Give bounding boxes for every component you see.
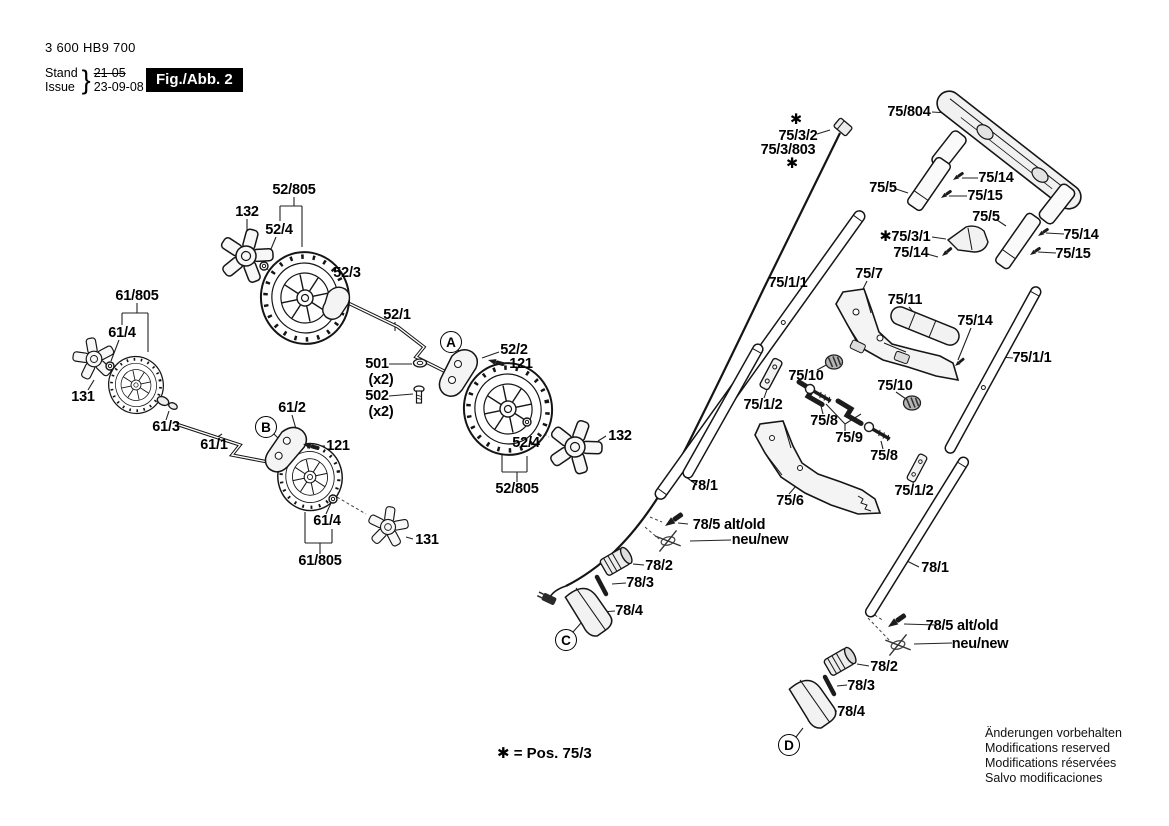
spring-75-10-left (826, 355, 843, 369)
bushing-52-4-right (523, 418, 531, 426)
part-label-52-1: 52/1 (383, 307, 410, 323)
part-label-x2: (x2) (369, 404, 394, 420)
crossed-screw-right (885, 634, 910, 655)
part-label-neu-new: neu/new (952, 636, 1009, 652)
part-label-78-5-alt-old: 78/5 alt/old (693, 517, 766, 533)
screw-502 (414, 386, 424, 403)
bushing-61-4-bottom (329, 495, 337, 503)
stand-value: 21-05 (94, 66, 144, 80)
parts-diagram-page: 3 600 HB9 700 Stand Issue } 21-05 23-09-… (0, 0, 1169, 826)
crossed-screw-left (655, 530, 680, 551)
wheel-61-805-left (103, 351, 168, 418)
issue-label: Issue (45, 80, 78, 94)
part-label-52-805: 52/805 (495, 481, 538, 497)
part-label-75-15: 75/15 (967, 188, 1002, 204)
part-label-75-1-2: 75/1/2 (894, 483, 933, 499)
part-label-52-4: 52/4 (512, 435, 539, 451)
part-label-75-14: 75/14 (1063, 227, 1098, 243)
part-label-75-804: 75/804 (887, 104, 930, 120)
tube-75-5-right (994, 212, 1042, 270)
part-label-75-14: 75/14 (978, 170, 1013, 186)
callout-B: B (255, 416, 277, 438)
part-label-132: 132 (235, 204, 259, 220)
pin-78-3-d (825, 677, 834, 694)
callout-C: C (555, 629, 577, 651)
part-label-78-1: 78/1 (690, 478, 717, 494)
part-label-502: 502 (365, 388, 389, 404)
figure-number-badge: Fig./Abb. 2 (146, 68, 243, 92)
disclaimer: Änderungen vorbehaltenModifications rese… (985, 726, 1122, 786)
disclaimer-line: Salvo modificaciones (985, 771, 1122, 786)
tube-75-5-left (906, 156, 952, 212)
screw-75-14-right (1037, 227, 1050, 238)
bushing-61-4-left (106, 362, 114, 370)
callout-A: A (440, 331, 462, 353)
screw-75-14-top-left (952, 171, 965, 182)
part-label-75-1-2: 75/1/2 (743, 397, 782, 413)
part-number: 3 600 HB9 700 (45, 40, 144, 55)
washer-501 (414, 359, 427, 367)
pin-78-3-c (597, 577, 606, 594)
disclaimer-line: Änderungen vorbehalten (985, 726, 1122, 741)
part-label-75-9: 75/9 (835, 430, 862, 446)
part-label-75-5: 75/5 (869, 180, 896, 196)
cover-78-4-d (787, 673, 840, 731)
part-label-asterisk: ✱ (790, 112, 802, 128)
part-label-75-11: 75/11 (888, 292, 923, 308)
part-label-61-4: 61/4 (108, 325, 135, 341)
lever-75-9-b (835, 401, 863, 423)
part-label-75-3-1: ✱75/3/1 (879, 229, 930, 245)
part-label-78-2: 78/2 (645, 558, 672, 574)
part-label-78-3: 78/3 (626, 575, 653, 591)
screw-78-5-left (663, 511, 685, 529)
part-label-61-805: 61/805 (115, 288, 158, 304)
part-label-75-10: 75/10 (877, 378, 912, 394)
part-label-501: 501 (365, 356, 389, 372)
screw-78-5-right (886, 612, 908, 630)
plate-75-1-2-left (759, 358, 783, 391)
part-label-121: 121 (326, 438, 350, 454)
disclaimer-line: Modifications reserved (985, 741, 1122, 756)
stand-label: Stand (45, 66, 78, 80)
part-label-61-2: 61/2 (278, 400, 305, 416)
part-label-75-1-1: 75/1/1 (1012, 350, 1051, 366)
part-label-78-1: 78/1 (921, 560, 948, 576)
part-label-52-3: 52/3 (333, 265, 360, 281)
screw-75-14-mid (941, 246, 954, 258)
cap-75-3-1 (948, 226, 988, 252)
exploded-parts-drawing (0, 0, 1169, 826)
part-label-78-4: 78/4 (837, 704, 864, 720)
part-label-131: 131 (71, 389, 95, 405)
part-label-61-1: 61/1 (200, 437, 227, 453)
part-label-75-7: 75/7 (855, 266, 882, 282)
part-label-78-4: 78/4 (615, 603, 642, 619)
part-label-75-10: 75/10 (788, 368, 823, 384)
bar-75-11 (888, 304, 962, 348)
part-label-131: 131 (415, 532, 439, 548)
title-block: 3 600 HB9 700 Stand Issue } 21-05 23-09-… (45, 40, 144, 94)
knob-78-2-c (599, 546, 634, 577)
part-label-78-2: 78/2 (870, 659, 897, 675)
screw-75-15-right (1029, 246, 1042, 257)
screw-75-14-deck (954, 357, 966, 368)
upper-handle-75-804 (930, 86, 1086, 225)
part-label-75-14: 75/14 (893, 245, 928, 261)
stand-issue-block: Stand Issue } 21-05 23-09-08 (45, 66, 144, 94)
hubcap-131-bottom (365, 504, 411, 549)
plate-75-1-2-right (906, 453, 927, 483)
issue-value: 23-09-08 (94, 80, 144, 94)
part-label-61-4: 61/4 (313, 513, 340, 529)
part-label-78-3: 78/3 (847, 678, 874, 694)
bushing-61-3 (156, 395, 178, 411)
tube-78-1-right (864, 455, 971, 618)
part-label-132: 132 (608, 428, 632, 444)
part-label-75-1-1: 75/1/1 (768, 275, 807, 291)
part-label-asterisk: ✱ (786, 156, 798, 172)
part-label-75-6: 75/6 (776, 493, 803, 509)
part-label-75-15: 75/15 (1055, 246, 1090, 262)
part-label-75-8: 75/8 (810, 413, 837, 429)
part-label-78-5-alt-old: 78/5 alt/old (926, 618, 999, 634)
callout-D: D (778, 734, 800, 756)
asterisk-footnote: ✱ = Pos. 75/3 (497, 744, 592, 762)
knob-78-2-d (823, 646, 858, 677)
bolt-75-8-lower (863, 421, 892, 443)
tube-75-1-1-right (943, 285, 1042, 455)
spring-75-10-right (904, 396, 921, 410)
part-label-61-3: 61/3 (152, 419, 179, 435)
part-label-75-5: 75/5 (972, 209, 999, 225)
brace-glyph: } (82, 67, 91, 94)
bushing-52-4-top (260, 262, 268, 270)
part-label-52-805: 52/805 (272, 182, 315, 198)
part-label-x2: (x2) (369, 372, 394, 388)
part-label-61-805: 61/805 (298, 553, 341, 569)
part-label-neu-new: neu/new (732, 532, 789, 548)
part-label-75-8: 75/8 (870, 448, 897, 464)
part-label-75-14: 75/14 (957, 313, 992, 329)
part-label-121: 121 (509, 356, 533, 372)
disclaimer-line: Modifications réservées (985, 756, 1122, 771)
part-label-52-4: 52/4 (265, 222, 292, 238)
screw-75-15-top-left (940, 189, 953, 200)
